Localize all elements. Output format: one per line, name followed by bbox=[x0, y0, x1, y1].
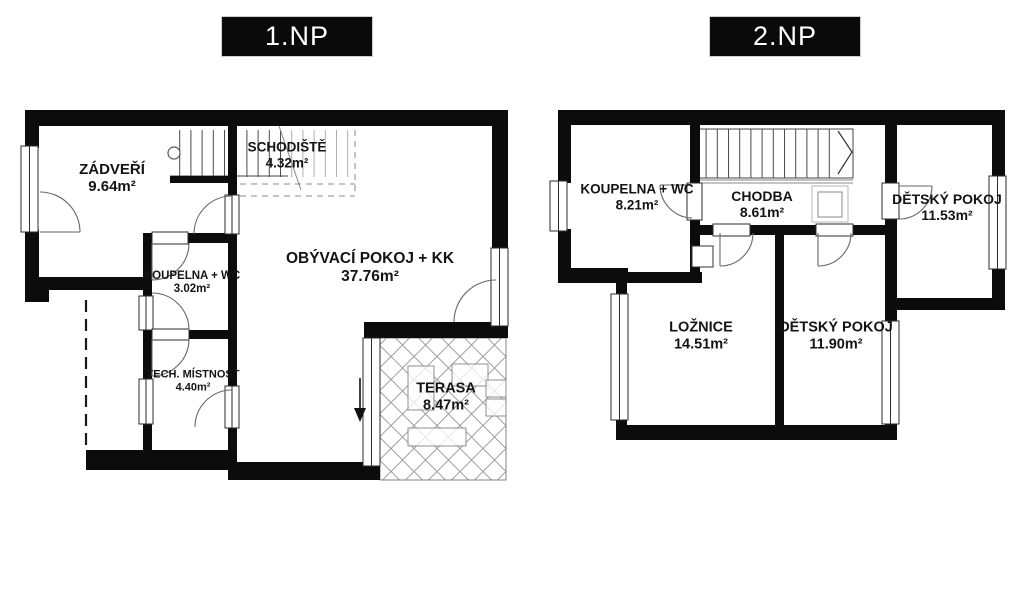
window bbox=[611, 294, 628, 420]
room-area: 14.51m² bbox=[674, 336, 728, 353]
room-name: DĚTSKÝ POKOJ bbox=[779, 319, 893, 336]
door-arc bbox=[818, 233, 851, 266]
room-label-detsky-pokoj-top: DĚTSKÝ POKOJ 11.53m² bbox=[892, 191, 1002, 223]
room-name: ZÁDVEŘÍ bbox=[79, 161, 145, 178]
room-area: 8.47m² bbox=[423, 397, 469, 414]
room-area: 4.40m² bbox=[176, 381, 211, 394]
window bbox=[491, 248, 508, 326]
room-area: 3.02m² bbox=[174, 283, 210, 296]
room-label-chodba: CHODBA 8.61m² bbox=[731, 188, 792, 220]
room-area: 9.64m² bbox=[88, 178, 136, 195]
room-name: KOUPELNA + WC bbox=[580, 181, 693, 197]
room-area: 11.53m² bbox=[921, 207, 972, 223]
door-opening bbox=[816, 224, 853, 236]
room-label-detsky-pokoj-bottom: DĚTSKÝ POKOJ 11.90m² bbox=[779, 319, 893, 352]
floorplan-canvas: 1.NP 2.NP ZÁDVEŘÍ 9.64m² SCHODIŠTĚ 4.32m… bbox=[0, 0, 1024, 596]
room-name: OBÝVACÍ POKOJ + KK bbox=[286, 250, 454, 268]
door-arc bbox=[720, 233, 753, 266]
stair-newel-post bbox=[168, 147, 180, 159]
room-name: KOUPELNA + WC bbox=[144, 270, 240, 283]
room-label-loznice: LOŽNICE 14.51m² bbox=[669, 319, 733, 352]
room-area: 37.76m² bbox=[341, 268, 399, 286]
floor-2np bbox=[550, 110, 1006, 440]
room-name: TECH. MÍSTNOST bbox=[147, 368, 240, 381]
floor-title-text: 1.NP bbox=[265, 21, 329, 52]
window bbox=[21, 146, 38, 232]
door-arc bbox=[454, 280, 496, 322]
room-label-koupelna-2np: KOUPELNA + WC 8.21m² bbox=[580, 181, 693, 212]
terrace-door-window bbox=[363, 338, 380, 466]
room-label-terasa: TERASA 8.47m² bbox=[416, 380, 476, 413]
floorplan-drawing bbox=[0, 0, 1024, 596]
window bbox=[550, 181, 567, 231]
room-name: SCHODIŠTĚ bbox=[248, 139, 327, 155]
room-name: DĚTSKÝ POKOJ bbox=[892, 191, 1002, 207]
floor-title-2np: 2.NP bbox=[710, 17, 860, 56]
hallway-wardrobe bbox=[812, 186, 848, 222]
room-area: 8.21m² bbox=[616, 197, 659, 213]
room-area: 4.32m² bbox=[266, 155, 309, 171]
door-opening bbox=[713, 224, 750, 236]
room-name: TERASA bbox=[416, 380, 476, 397]
shaft bbox=[692, 246, 713, 267]
door-opening bbox=[152, 232, 188, 244]
room-name: LOŽNICE bbox=[669, 319, 733, 336]
door-arc bbox=[40, 192, 80, 232]
stair-direction-arrow bbox=[838, 131, 852, 174]
room-label-schodiste: SCHODIŠTĚ 4.32m² bbox=[248, 139, 327, 170]
room-area: 11.90m² bbox=[809, 336, 862, 353]
room-label-tech-mistnost: TECH. MÍSTNOST 4.40m² bbox=[147, 368, 240, 393]
room-name: CHODBA bbox=[731, 188, 792, 204]
door-arc bbox=[152, 293, 189, 330]
door-opening bbox=[152, 329, 189, 340]
room-label-zadveri: ZÁDVEŘÍ 9.64m² bbox=[79, 161, 145, 196]
room-area: 8.61m² bbox=[740, 204, 784, 220]
room-label-obyvaci-pokoj: OBÝVACÍ POKOJ + KK 37.76m² bbox=[286, 250, 454, 286]
room-label-koupelna-1np: KOUPELNA + WC 3.02m² bbox=[144, 270, 240, 296]
window bbox=[139, 296, 153, 330]
floor-title-text: 2.NP bbox=[753, 21, 817, 52]
stairs-2np bbox=[693, 129, 853, 183]
door-jamb bbox=[225, 195, 239, 234]
floor-title-1np: 1.NP bbox=[222, 17, 372, 56]
